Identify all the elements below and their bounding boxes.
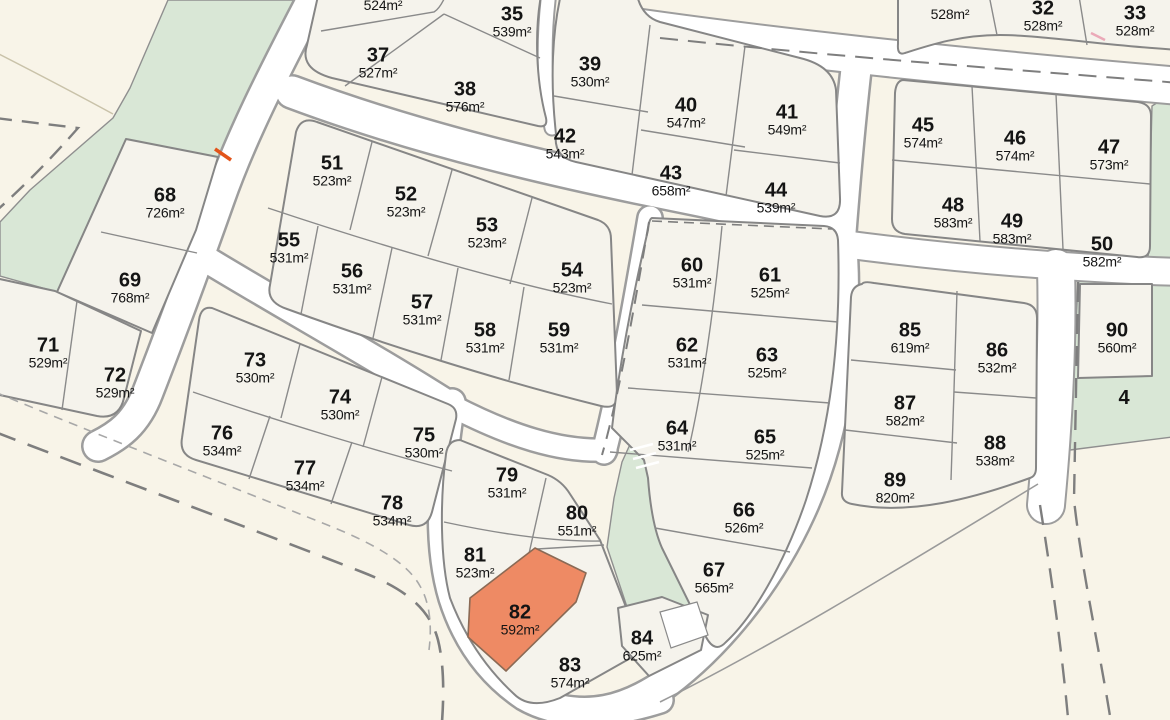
lot-area: 592m² (501, 623, 540, 637)
lot-number: 73 (236, 351, 275, 371)
lot-number: 74 (321, 388, 360, 408)
lot-area: 539m² (493, 25, 532, 39)
lot-number: 54 (553, 261, 592, 281)
lot-area: 534m² (286, 479, 325, 493)
lot-area: 530m² (321, 408, 360, 422)
lot-number: 79 (488, 466, 527, 486)
lot-label-65[interactable]: 65525m² (746, 428, 785, 463)
lot-label-56[interactable]: 56531m² (333, 262, 372, 297)
lot-label-62[interactable]: 62531m² (668, 336, 707, 371)
lot-number: 43 (652, 164, 691, 184)
lot-label-89[interactable]: 89820m² (876, 471, 915, 506)
lot-number: 63 (748, 346, 787, 366)
lot-number: 60 (673, 256, 712, 276)
lot-area: 525m² (751, 286, 790, 300)
lot-label-55[interactable]: 55531m² (270, 231, 309, 266)
lot-label-72[interactable]: 72529m² (96, 366, 135, 401)
lot-label-67[interactable]: 67565m² (695, 561, 734, 596)
lot-number: 4 (1118, 388, 1129, 408)
lot-area: 530m² (236, 371, 275, 385)
lot-number: 32 (1024, 0, 1063, 19)
lot-area: 529m² (96, 386, 135, 400)
lot-label-69[interactable]: 69768m² (111, 271, 150, 306)
lot-area: 530m² (405, 446, 444, 460)
lot-number: 39 (571, 55, 610, 75)
lot-label-81[interactable]: 81523m² (456, 546, 495, 581)
lot-area: 573m² (1090, 158, 1129, 172)
lot-number: 38 (446, 80, 485, 100)
lot-number: 86 (978, 341, 1017, 361)
lot-area: 523m² (456, 566, 495, 580)
lot-number: 85 (891, 321, 930, 341)
lot-label-87[interactable]: 87582m² (886, 394, 925, 429)
lot-label-68[interactable]: 68726m² (146, 186, 185, 221)
lot-label-45[interactable]: 45574m² (904, 116, 943, 151)
lot-label-54[interactable]: 54523m² (553, 261, 592, 296)
lot-label-32[interactable]: 32528m² (1024, 0, 1063, 33)
lot-label-37[interactable]: 37527m² (359, 46, 398, 81)
lot-number: 47 (1090, 138, 1129, 158)
lot-area: 534m² (373, 514, 412, 528)
lot-area: 531m² (673, 276, 712, 290)
lot-label-57[interactable]: 57531m² (403, 293, 442, 328)
lot-number: 40 (667, 96, 706, 116)
lot-number: 56 (333, 262, 372, 282)
lot-area: 560m² (1098, 341, 1137, 355)
plat-map-stage: 524m²35539m²37527m²38576m²39530m²40547m²… (0, 0, 1170, 720)
lot-number: 84 (623, 629, 662, 649)
lot-number: 52 (387, 185, 426, 205)
lot-area: 531m² (540, 341, 579, 355)
lot-label-61[interactable]: 61525m² (751, 266, 790, 301)
lot-label-75[interactable]: 75530m² (405, 426, 444, 461)
lot-area: 532m² (978, 361, 1017, 375)
lot-number: 69 (111, 271, 150, 291)
lot-area: 528m² (1116, 24, 1155, 38)
lot-number: 53 (468, 216, 507, 236)
lot-area: 524m² (364, 0, 403, 12)
lot-label-48[interactable]: 48583m² (934, 196, 973, 231)
lot-number: 87 (886, 394, 925, 414)
lot-label-46[interactable]: 46574m² (996, 129, 1035, 164)
lot-label-88[interactable]: 88538m² (976, 434, 1015, 469)
lot-number: 55 (270, 231, 309, 251)
lot-label-44[interactable]: 44539m² (757, 181, 796, 216)
lot-label-84[interactable]: 84625m² (623, 629, 662, 664)
lot-area: 529m² (29, 356, 68, 370)
lot-number: 75 (405, 426, 444, 446)
lot-label-85[interactable]: 85619m² (891, 321, 930, 356)
lot-area: 523m² (468, 236, 507, 250)
lot-area: 525m² (746, 448, 785, 462)
lot-label-78[interactable]: 78534m² (373, 494, 412, 529)
lot-label-33[interactable]: 33528m² (1116, 4, 1155, 39)
lot-label-59[interactable]: 59531m² (540, 321, 579, 356)
lot-number: 72 (96, 366, 135, 386)
lot-area: 531m² (488, 486, 527, 500)
lot-number: 71 (29, 336, 68, 356)
lot-number: 42 (546, 127, 585, 147)
lot-label-71[interactable]: 71529m² (29, 336, 68, 371)
lot-label-90[interactable]: 90560m² (1098, 321, 1137, 356)
lot-number: 45 (904, 116, 943, 136)
lot-label-80[interactable]: 80551m² (558, 504, 597, 539)
lot-area: 565m² (695, 581, 734, 595)
lot-label-52[interactable]: 52523m² (387, 185, 426, 220)
lot-area: 534m² (203, 444, 242, 458)
lot-area: 526m² (725, 521, 764, 535)
lot-label-64[interactable]: 64531m² (658, 419, 697, 454)
lot-area: 574m² (904, 136, 943, 150)
lot-number: 80 (558, 504, 597, 524)
lot-area: 523m² (313, 174, 352, 188)
lot-label-51[interactable]: 51523m² (313, 154, 352, 189)
lot-area: 658m² (652, 184, 691, 198)
lot-number: 57 (403, 293, 442, 313)
lot-area: 531m² (668, 356, 707, 370)
lot-number: 83 (551, 656, 590, 676)
lot-area: 582m² (1083, 255, 1122, 269)
lot-label-38[interactable]: 38576m² (446, 80, 485, 115)
lot-area: 543m² (546, 147, 585, 161)
lot-number: 64 (658, 419, 697, 439)
lot-label-41[interactable]: 41549m² (768, 103, 807, 138)
lot-label-76[interactable]: 76534m² (203, 424, 242, 459)
lot-area: 576m² (446, 100, 485, 114)
lot-area: 525m² (748, 366, 787, 380)
lot-label-40[interactable]: 40547m² (667, 96, 706, 131)
lot-label-77[interactable]: 77534m² (286, 459, 325, 494)
lot-number: 68 (146, 186, 185, 206)
lot-area: 820m² (876, 491, 915, 505)
lot-label-83[interactable]: 83574m² (551, 656, 590, 691)
lot-area: 531m² (333, 282, 372, 296)
lot-area: 726m² (146, 206, 185, 220)
lot-area: 531m² (466, 341, 505, 355)
lot-area: 528m² (1024, 19, 1063, 33)
lot-number: 77 (286, 459, 325, 479)
lot-area: 531m² (270, 251, 309, 265)
lot-number: 76 (203, 424, 242, 444)
lot-number: 90 (1098, 321, 1137, 341)
lot-number: 67 (695, 561, 734, 581)
lot-label-58[interactable]: 58531m² (466, 321, 505, 356)
lot-number: 50 (1083, 235, 1122, 255)
lot-label-74[interactable]: 74530m² (321, 388, 360, 423)
lot-area: 583m² (993, 232, 1032, 246)
lot-number: 88 (976, 434, 1015, 454)
lot-area: 539m² (757, 201, 796, 215)
lot-area: 547m² (667, 116, 706, 130)
lot-label-86[interactable]: 86532m² (978, 341, 1017, 376)
lot-area: 768m² (111, 291, 150, 305)
lot-label-47[interactable]: 47573m² (1090, 138, 1129, 173)
lot-label-42[interactable]: 42543m² (546, 127, 585, 162)
lot-number: 49 (993, 212, 1032, 232)
lot-number: 41 (768, 103, 807, 123)
lot-number: 82 (501, 603, 540, 623)
lot-label-35[interactable]: 35539m² (493, 5, 532, 40)
lot-area: 551m² (558, 524, 597, 538)
lot-label-82[interactable]: 82592m² (501, 603, 540, 638)
lot-area: 531m² (403, 313, 442, 327)
lot-label-partial[interactable]: 528m² (931, 7, 970, 21)
lot-label-4[interactable]: 4 (1118, 388, 1129, 408)
lot-area: 582m² (886, 414, 925, 428)
lot-label-49[interactable]: 49583m² (993, 212, 1032, 247)
lot-number: 59 (540, 321, 579, 341)
lot-number: 61 (751, 266, 790, 286)
lot-number: 78 (373, 494, 412, 514)
lot-area: 574m² (996, 149, 1035, 163)
lot-label-43[interactable]: 43658m² (652, 164, 691, 199)
lot-label-60[interactable]: 60531m² (673, 256, 712, 291)
lot-area: 531m² (658, 439, 697, 453)
lot-area: 538m² (976, 454, 1015, 468)
lot-area: 583m² (934, 216, 973, 230)
lot-label-53[interactable]: 53523m² (468, 216, 507, 251)
lot-area: 523m² (387, 205, 426, 219)
lot-area: 619m² (891, 341, 930, 355)
lot-number: 33 (1116, 4, 1155, 24)
lot-labels-layer: 524m²35539m²37527m²38576m²39530m²40547m²… (0, 0, 1170, 720)
lot-number: 37 (359, 46, 398, 66)
lot-number: 46 (996, 129, 1035, 149)
lot-label-79[interactable]: 79531m² (488, 466, 527, 501)
lot-area: 527m² (359, 66, 398, 80)
lot-label-partial[interactable]: 524m² (364, 0, 403, 12)
lot-area: 549m² (768, 123, 807, 137)
lot-label-50[interactable]: 50582m² (1083, 235, 1122, 270)
lot-number: 81 (456, 546, 495, 566)
lot-area: 528m² (931, 7, 970, 21)
lot-number: 44 (757, 181, 796, 201)
lot-area: 574m² (551, 676, 590, 690)
lot-number: 89 (876, 471, 915, 491)
lot-number: 35 (493, 5, 532, 25)
lot-number: 51 (313, 154, 352, 174)
lot-label-39[interactable]: 39530m² (571, 55, 610, 90)
lot-label-66[interactable]: 66526m² (725, 501, 764, 536)
lot-label-63[interactable]: 63525m² (748, 346, 787, 381)
lot-number: 62 (668, 336, 707, 356)
lot-number: 65 (746, 428, 785, 448)
lot-number: 66 (725, 501, 764, 521)
lot-area: 625m² (623, 649, 662, 663)
lot-area: 530m² (571, 75, 610, 89)
lot-number: 48 (934, 196, 973, 216)
lot-label-73[interactable]: 73530m² (236, 351, 275, 386)
lot-area: 523m² (553, 281, 592, 295)
lot-number: 58 (466, 321, 505, 341)
